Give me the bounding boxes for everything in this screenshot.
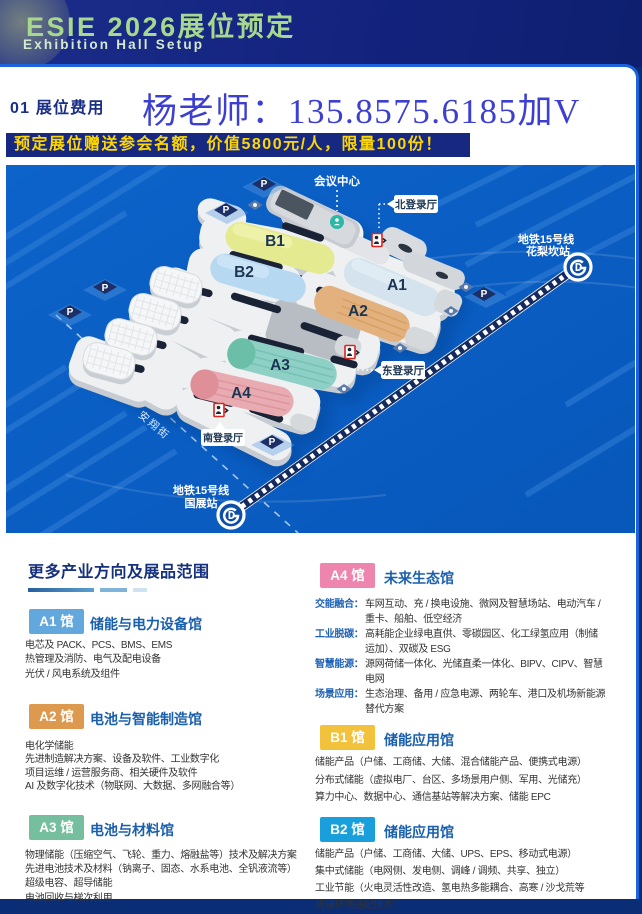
svg-text:P: P — [223, 205, 230, 216]
svg-text:P: P — [261, 179, 268, 190]
svg-text:B1: B1 — [265, 233, 285, 250]
svg-text:地铁15号线: 地铁15号线 — [173, 483, 229, 497]
svg-text:A1: A1 — [387, 277, 407, 294]
svg-text:P: P — [481, 289, 488, 300]
svg-text:A2: A2 — [348, 303, 368, 320]
svg-text:花梨坎站: 花梨坎站 — [526, 244, 570, 258]
svg-text:东登录厅: 东登录厅 — [382, 364, 424, 377]
svg-text:北登录厅: 北登录厅 — [395, 198, 437, 211]
svg-text:会议中心: 会议中心 — [313, 174, 360, 188]
svg-text:南登录厅: 南登录厅 — [203, 432, 243, 445]
svg-text:B2: B2 — [234, 264, 254, 281]
svg-text:地铁15号线: 地铁15号线 — [518, 232, 574, 246]
svg-text:P: P — [269, 437, 276, 448]
svg-text:A4: A4 — [231, 385, 251, 402]
svg-text:A3: A3 — [270, 357, 290, 374]
svg-text:P: P — [67, 307, 74, 318]
svg-text:P: P — [102, 283, 109, 294]
svg-text:国展站: 国展站 — [185, 496, 218, 510]
